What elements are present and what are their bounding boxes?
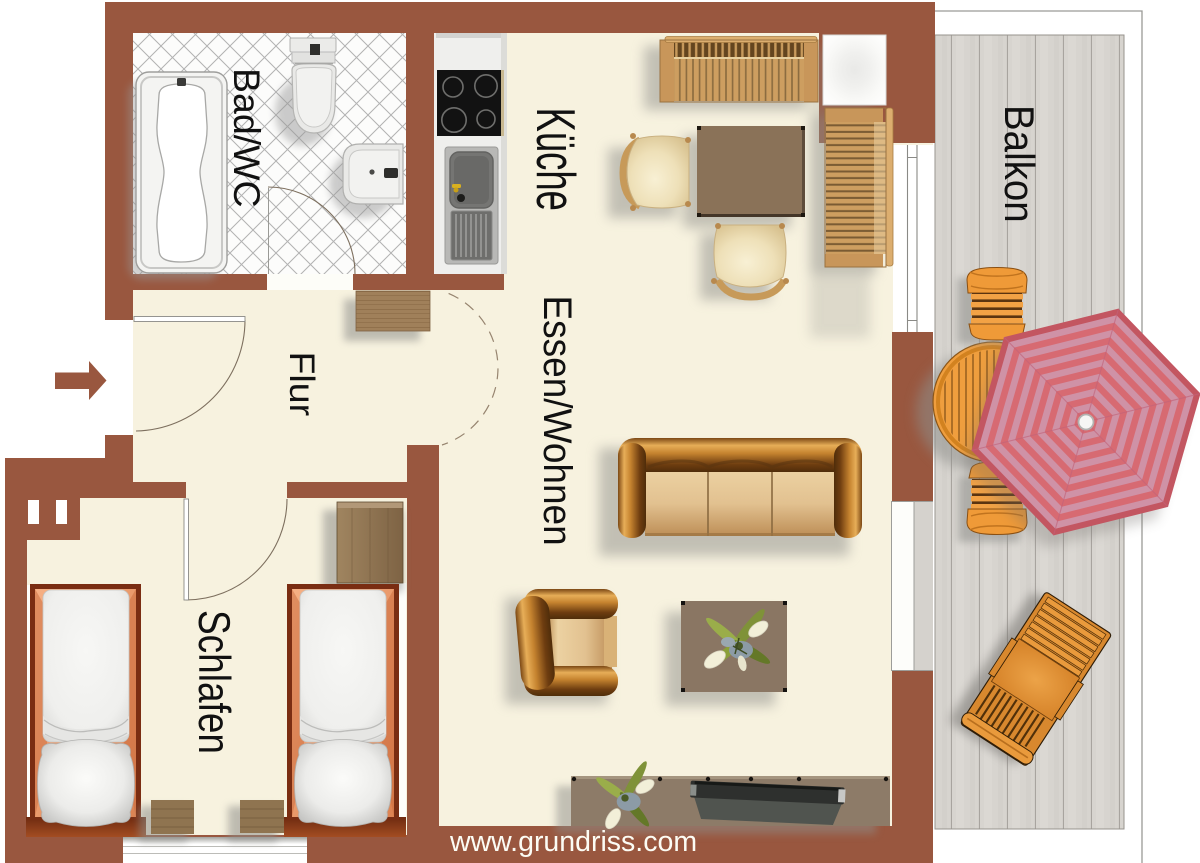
- svg-text:Flur: Flur: [282, 352, 322, 417]
- svg-text:Schlafen: Schlafen: [189, 610, 239, 754]
- svg-text:Balkon: Balkon: [996, 105, 1042, 223]
- svg-text:Bad/WC: Bad/WC: [226, 68, 268, 208]
- svg-text:Küche: Küche: [525, 108, 586, 211]
- svg-text:Essen/Wohnen: Essen/Wohnen: [535, 296, 580, 546]
- svg-text:www.grundriss.com: www.grundriss.com: [449, 826, 697, 858]
